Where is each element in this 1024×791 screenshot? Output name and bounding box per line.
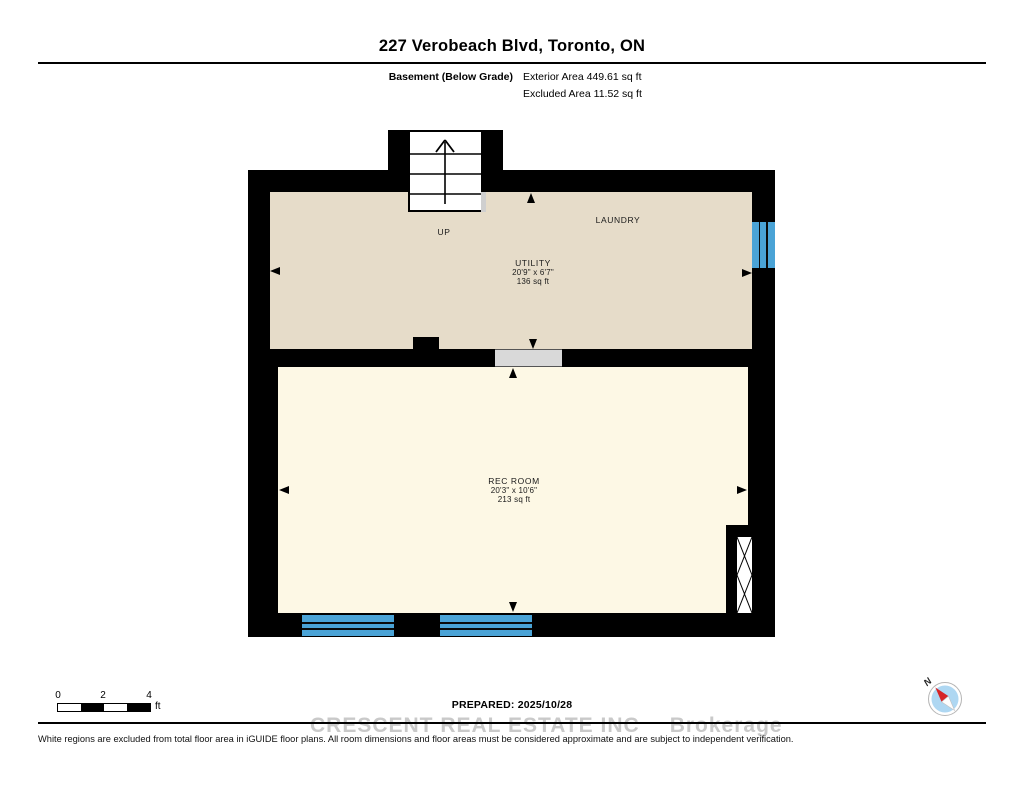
window-pane-line xyxy=(440,628,532,630)
rec-room-name: REC ROOM xyxy=(488,476,540,486)
rec-arrow-up xyxy=(509,368,517,378)
window-bottom-right xyxy=(440,615,532,636)
laundry-label: LAUNDRY xyxy=(596,215,641,225)
scale-segment xyxy=(104,704,127,711)
excluded-area-strip xyxy=(737,537,752,613)
staircase-treads-and-arrow xyxy=(410,132,481,210)
scale-tick-4: 4 xyxy=(146,690,152,701)
floorplan-page: 227 Verobeach Blvd, Toronto, ON Basement… xyxy=(0,0,1024,791)
window-pane-line xyxy=(440,622,532,624)
rec-room-dims: 20'3" x 10'6" xyxy=(488,486,540,495)
staircase xyxy=(408,130,483,212)
utility-room-floor xyxy=(270,192,752,349)
scale-segment xyxy=(58,704,81,711)
rec-arrow-right xyxy=(737,486,747,494)
utility-room-name: UTILITY xyxy=(512,258,554,268)
scale-segment xyxy=(81,704,104,711)
rec-arrow-left xyxy=(279,486,289,494)
window-bottom-left xyxy=(302,615,394,636)
compass-icon: N xyxy=(918,672,972,726)
utility-room-area: 136 sq ft xyxy=(512,277,554,286)
utility-room-label: UTILITY 20'9" x 6'7" 136 sq ft xyxy=(512,258,554,286)
window-pane-line xyxy=(766,222,768,268)
scale-bar xyxy=(57,703,151,712)
doorway-opening xyxy=(495,349,562,367)
up-label: UP xyxy=(437,227,450,237)
stair-shadow xyxy=(481,192,486,212)
window-pane-line xyxy=(302,622,394,624)
excluded-area-x-hatch xyxy=(737,537,752,613)
window-right xyxy=(752,222,775,268)
footer-divider xyxy=(38,722,986,724)
scale-unit: ft xyxy=(155,701,161,712)
utility-arrow-down xyxy=(529,339,537,349)
scale-segment xyxy=(127,704,150,711)
utility-room-dims: 20'9" x 6'7" xyxy=(512,268,554,277)
compass-north-label: N xyxy=(922,675,935,689)
scale-tick-2: 2 xyxy=(100,690,106,701)
utility-arrow-left xyxy=(270,267,280,275)
floorplan-canvas: UP LAUNDRY UTILITY 20'9" x 6'7" 136 sq f… xyxy=(0,0,1024,660)
utility-arrow-up xyxy=(527,193,535,203)
prepared-date: PREPARED: 2025/10/28 xyxy=(452,699,573,711)
rec-room-label: REC ROOM 20'3" x 10'6" 213 sq ft xyxy=(488,476,540,504)
utility-arrow-right xyxy=(742,269,752,277)
rec-room-area: 213 sq ft xyxy=(488,495,540,504)
disclaimer-text: White regions are excluded from total fl… xyxy=(38,734,794,744)
scale-tick-0: 0 xyxy=(55,690,61,701)
window-pane-line xyxy=(302,628,394,630)
rec-arrow-down xyxy=(509,602,517,612)
wall-stub xyxy=(413,337,439,350)
window-pane-line xyxy=(759,222,761,268)
